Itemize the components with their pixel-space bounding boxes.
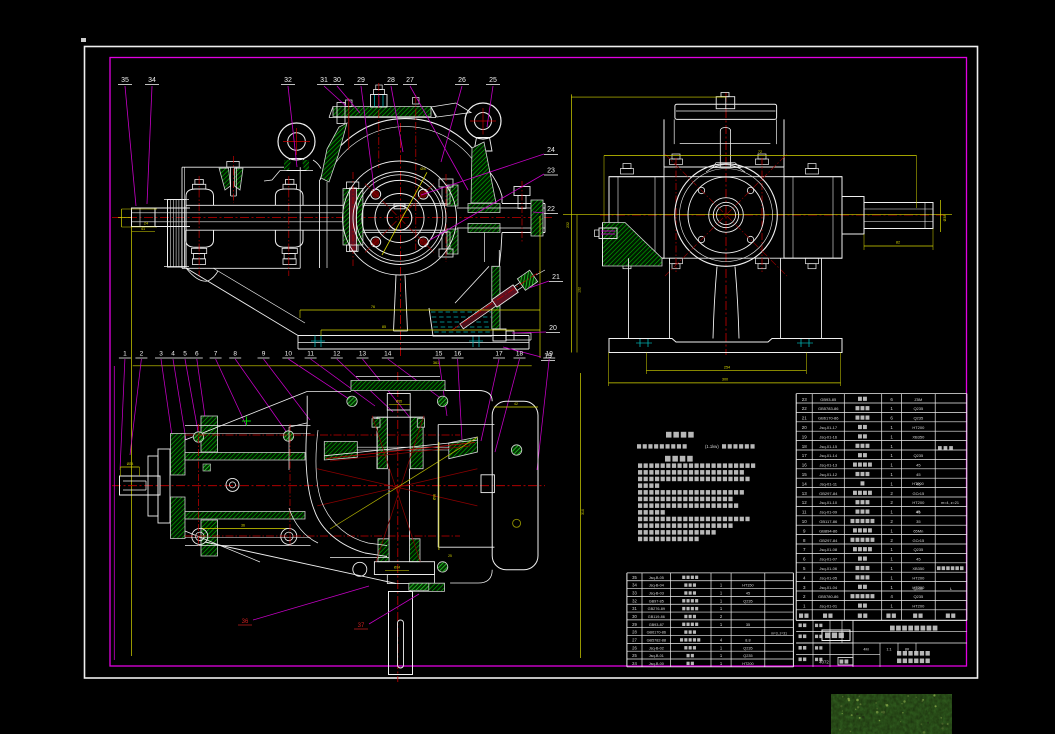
svg-text:20: 20 (802, 425, 808, 430)
svg-text:Jsq-B-00: Jsq-B-00 (649, 662, 664, 666)
svg-text:GB93-85: GB93-85 (820, 397, 837, 402)
svg-text:(1.1kw): (1.1kw) (705, 444, 719, 449)
svg-text:300: 300 (722, 378, 728, 382)
svg-text:23: 23 (802, 397, 808, 402)
svg-text:5: 5 (183, 351, 187, 358)
svg-text:Jsq-01-16: Jsq-01-16 (819, 434, 838, 439)
svg-text:Jsq-01-12: Jsq-01-12 (819, 472, 838, 477)
svg-text:85: 85 (382, 325, 386, 329)
svg-text:GCr15: GCr15 (912, 538, 925, 543)
svg-text:Jsq-B-04: Jsq-B-04 (649, 584, 664, 588)
svg-text:Ø38: Ø38 (943, 215, 947, 222)
svg-text:GB6170-86: GB6170-86 (818, 416, 839, 421)
svg-text:25: 25 (448, 554, 452, 558)
svg-text:26: 26 (458, 77, 466, 84)
svg-text:GB5783-86: GB5783-86 (818, 406, 839, 411)
svg-text:HT200: HT200 (912, 604, 925, 609)
svg-text:35: 35 (746, 623, 750, 627)
svg-text:4: 4 (171, 351, 175, 358)
svg-text:Jsq-B-02: Jsq-B-02 (649, 646, 664, 650)
svg-text:GB119-86: GB119-86 (648, 615, 665, 619)
svg-text:361: 361 (433, 361, 439, 365)
svg-text:10: 10 (802, 519, 808, 524)
svg-text:42: 42 (514, 402, 518, 406)
svg-text:8.8: 8.8 (745, 639, 750, 643)
svg-text:16: 16 (454, 351, 462, 358)
svg-text:Q235: Q235 (913, 547, 924, 552)
svg-text:XB350: XB350 (912, 434, 925, 439)
svg-text:13: 13 (802, 491, 808, 496)
svg-text:25: 25 (489, 77, 497, 84)
svg-text:1: 1 (123, 351, 127, 358)
svg-text:31: 31 (320, 77, 328, 84)
svg-text:35: 35 (121, 77, 129, 84)
svg-text:GB5780-86: GB5780-86 (818, 594, 839, 599)
svg-text:82: 82 (896, 241, 900, 245)
svg-text:Q235: Q235 (913, 453, 924, 458)
svg-text:GB93-87: GB93-87 (649, 623, 664, 627)
svg-text:21: 21 (552, 274, 560, 281)
svg-text:GB894-86: GB894-86 (819, 528, 838, 533)
svg-text:310: 310 (581, 509, 585, 515)
svg-text:29: 29 (632, 622, 637, 627)
svg-text:30: 30 (333, 77, 341, 84)
svg-text:20: 20 (549, 325, 557, 332)
svg-text:19: 19 (546, 351, 554, 358)
svg-text:35: 35 (632, 575, 637, 580)
svg-text:24: 24 (632, 661, 637, 666)
svg-text:41: 41 (141, 227, 145, 231)
svg-text:45: 45 (916, 509, 921, 514)
svg-text:12: 12 (333, 351, 341, 358)
svg-text:GB97-85: GB97-85 (649, 599, 664, 603)
svg-text:36: 36 (241, 524, 245, 528)
svg-text:36: 36 (242, 619, 249, 625)
svg-text:11: 11 (307, 351, 314, 358)
svg-text:HT150: HT150 (742, 584, 753, 588)
svg-text:GB6170-86: GB6170-86 (647, 631, 666, 635)
svg-text:Ø35: Ø35 (396, 400, 402, 404)
svg-text:Jsq-01-11: Jsq-01-11 (820, 481, 838, 486)
svg-text:Jsq-B-03: Jsq-B-03 (649, 592, 664, 596)
svg-text:29: 29 (357, 77, 365, 84)
svg-text:10: 10 (285, 351, 293, 358)
svg-text:3: 3 (159, 351, 163, 358)
svg-text:35: 35 (916, 519, 921, 524)
svg-text:GB5782-88: GB5782-88 (647, 639, 666, 643)
svg-text:15: 15 (802, 472, 808, 477)
svg-text:34: 34 (632, 583, 637, 588)
svg-text:27: 27 (406, 77, 414, 84)
svg-text:HT200: HT200 (742, 662, 753, 666)
svg-text:17: 17 (495, 351, 503, 358)
svg-text:Q235: Q235 (743, 599, 752, 603)
svg-text:26: 26 (632, 645, 637, 650)
svg-text:2: 2 (140, 351, 144, 358)
svg-text:Jsq-B-01: Jsq-B-01 (649, 654, 664, 658)
svg-text:Ø98: Ø98 (433, 494, 437, 500)
svg-text:11: 11 (802, 510, 807, 515)
svg-text:GB117-86: GB117-86 (819, 519, 838, 524)
svg-text:Q235: Q235 (913, 416, 924, 421)
svg-text:HT200: HT200 (912, 575, 925, 580)
svg-text:6: 6 (195, 351, 199, 358)
svg-text:Ø4: Ø4 (420, 166, 426, 171)
svg-text:Ø24: Ø24 (394, 566, 400, 570)
svg-text:9: 9 (262, 351, 266, 358)
svg-text:4072: 4072 (819, 660, 829, 665)
svg-text:Jsq-01-06: Jsq-01-06 (819, 566, 838, 571)
svg-text:Jsq-01-13: Jsq-01-13 (819, 463, 838, 468)
svg-text:12: 12 (802, 500, 808, 505)
svg-text:72: 72 (758, 150, 762, 154)
svg-text:7: 7 (214, 351, 218, 358)
svg-text:1:1: 1:1 (886, 648, 891, 652)
svg-text:232: 232 (566, 222, 570, 228)
svg-text:22: 22 (547, 206, 555, 213)
svg-text:Jsq-01-07: Jsq-01-07 (819, 557, 838, 562)
svg-text:GCr15: GCr15 (912, 491, 925, 496)
svg-text:76: 76 (371, 305, 375, 309)
svg-text:Jsq-01-17: Jsq-01-17 (819, 425, 838, 430)
svg-text:32: 32 (284, 77, 292, 84)
svg-text:18: 18 (516, 351, 524, 358)
svg-text:16: 16 (802, 463, 808, 468)
svg-text:Jsq-01-09: Jsq-01-09 (819, 510, 838, 515)
svg-text:Z5M: Z5M (914, 397, 922, 402)
svg-text:Jsq-01-04: Jsq-01-04 (819, 585, 838, 590)
svg-text:Jsq-B-05: Jsq-B-05 (649, 576, 664, 580)
svg-text:Ø24: Ø24 (127, 462, 134, 466)
svg-text:31: 31 (632, 606, 637, 611)
svg-text:GB297-84: GB297-84 (819, 491, 838, 496)
svg-text:23: 23 (547, 168, 555, 175)
svg-text:m=3, z=31: m=3, z=31 (771, 632, 787, 636)
svg-text:4M: 4M (863, 648, 868, 652)
svg-text:30: 30 (632, 614, 637, 619)
svg-text:Jsq-01-01: Jsq-01-01 (819, 604, 838, 609)
svg-text:32: 32 (632, 598, 637, 603)
svg-text:GB297-84: GB297-84 (819, 538, 838, 543)
svg-text:m=4, z=21: m=4, z=21 (941, 501, 959, 505)
svg-text:14: 14 (384, 351, 392, 358)
svg-text:Jsq-01-08: Jsq-01-08 (819, 547, 838, 552)
svg-text:28: 28 (632, 630, 637, 635)
svg-text:14: 14 (802, 481, 808, 486)
svg-text:XB350: XB350 (912, 566, 925, 571)
svg-text:25: 25 (632, 653, 637, 658)
svg-text:Jsq-01-15: Jsq-01-15 (819, 444, 838, 449)
svg-text:24: 24 (547, 147, 555, 154)
svg-text:GB276-89: GB276-89 (648, 607, 665, 611)
svg-text:34: 34 (148, 77, 156, 84)
svg-text:65Mn: 65Mn (913, 528, 923, 533)
svg-text:24: 24 (144, 221, 149, 226)
svg-text:21: 21 (802, 416, 808, 421)
svg-text:33: 33 (632, 591, 637, 596)
svg-text:28: 28 (387, 77, 395, 84)
svg-text:254: 254 (724, 366, 730, 370)
svg-text:HT200: HT200 (912, 500, 925, 505)
svg-text:HT200: HT200 (912, 425, 925, 430)
svg-text:45: 45 (916, 557, 921, 562)
svg-text:19: 19 (802, 434, 808, 439)
svg-text:37: 37 (358, 623, 365, 629)
svg-text:8: 8 (233, 351, 237, 358)
svg-text:Jsq-01-05: Jsq-01-05 (819, 575, 838, 580)
svg-text:45: 45 (916, 463, 921, 468)
svg-text:Q235: Q235 (743, 646, 752, 650)
svg-text:Q235: Q235 (913, 406, 924, 411)
svg-text:27: 27 (632, 638, 637, 643)
svg-text:Q235: Q235 (743, 654, 752, 658)
svg-text:Jsq-01-10: Jsq-01-10 (819, 500, 838, 505)
svg-text:13: 13 (359, 351, 367, 358)
svg-text:22: 22 (802, 406, 808, 411)
svg-text:45: 45 (916, 472, 921, 477)
svg-text:Q235: Q235 (913, 594, 924, 599)
svg-text:132: 132 (578, 287, 582, 293)
svg-text:Jsq-01-14: Jsq-01-14 (819, 453, 838, 458)
svg-text:18: 18 (802, 444, 808, 449)
svg-text:Q235: Q235 (913, 587, 922, 591)
svg-text:15: 15 (435, 351, 443, 358)
svg-text:17: 17 (802, 453, 808, 458)
svg-text:HT200: HT200 (912, 482, 923, 486)
svg-text:45: 45 (746, 592, 750, 596)
